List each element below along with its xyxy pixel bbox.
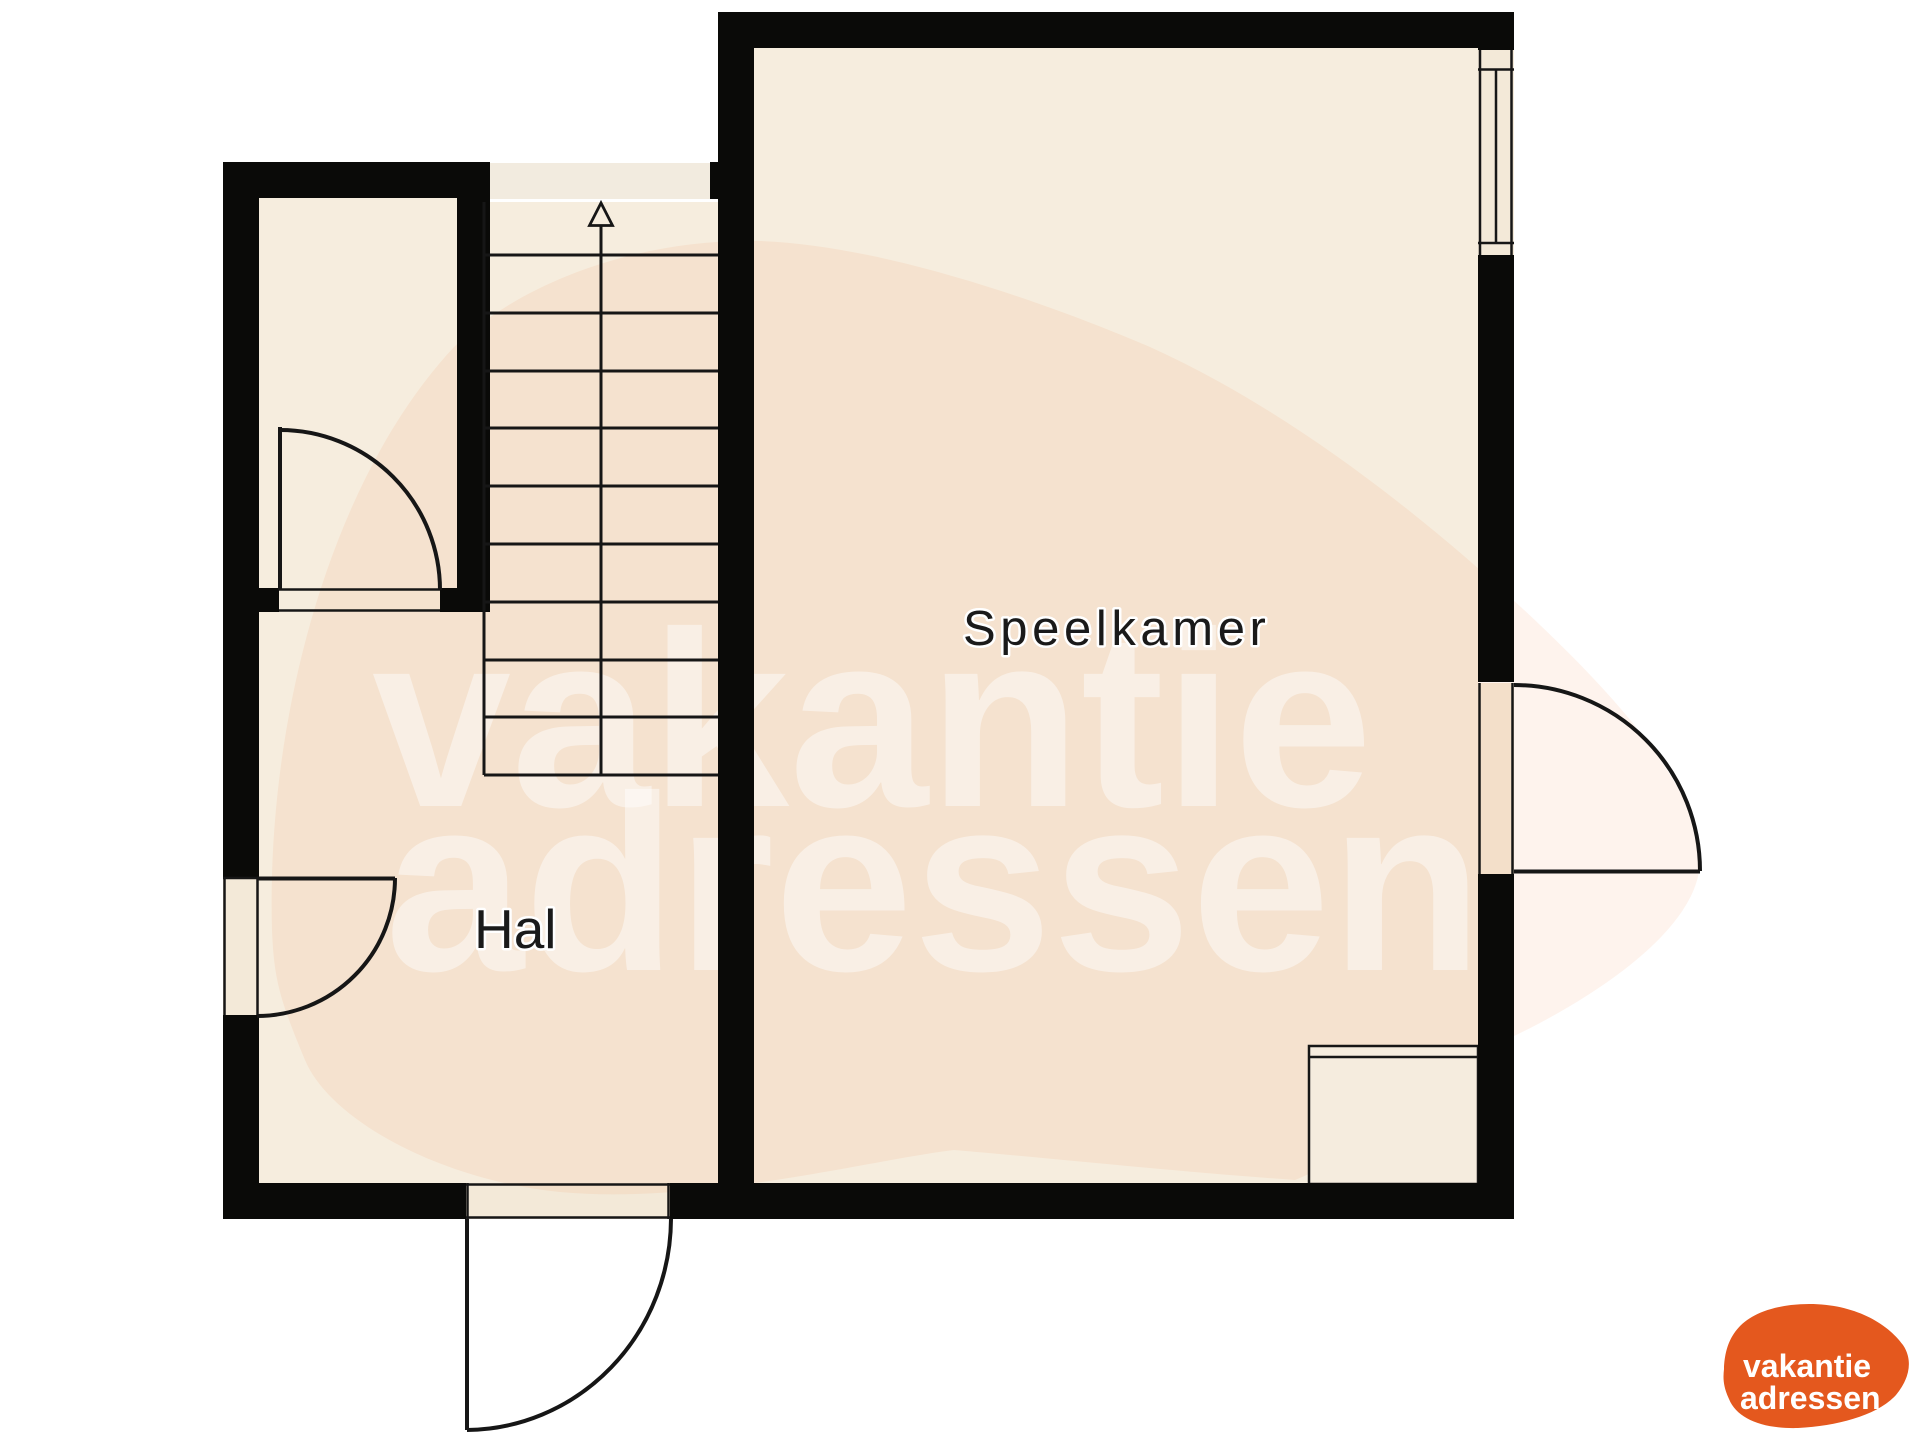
svg-text:Hal: Hal	[474, 898, 557, 960]
svg-text:adressen: adressen	[1740, 1380, 1881, 1416]
svg-text:Speelkamer: Speelkamer	[963, 602, 1270, 656]
svg-text:adressen: adressen	[385, 744, 1483, 1023]
svg-text:vakantie: vakantie	[1743, 1348, 1871, 1384]
